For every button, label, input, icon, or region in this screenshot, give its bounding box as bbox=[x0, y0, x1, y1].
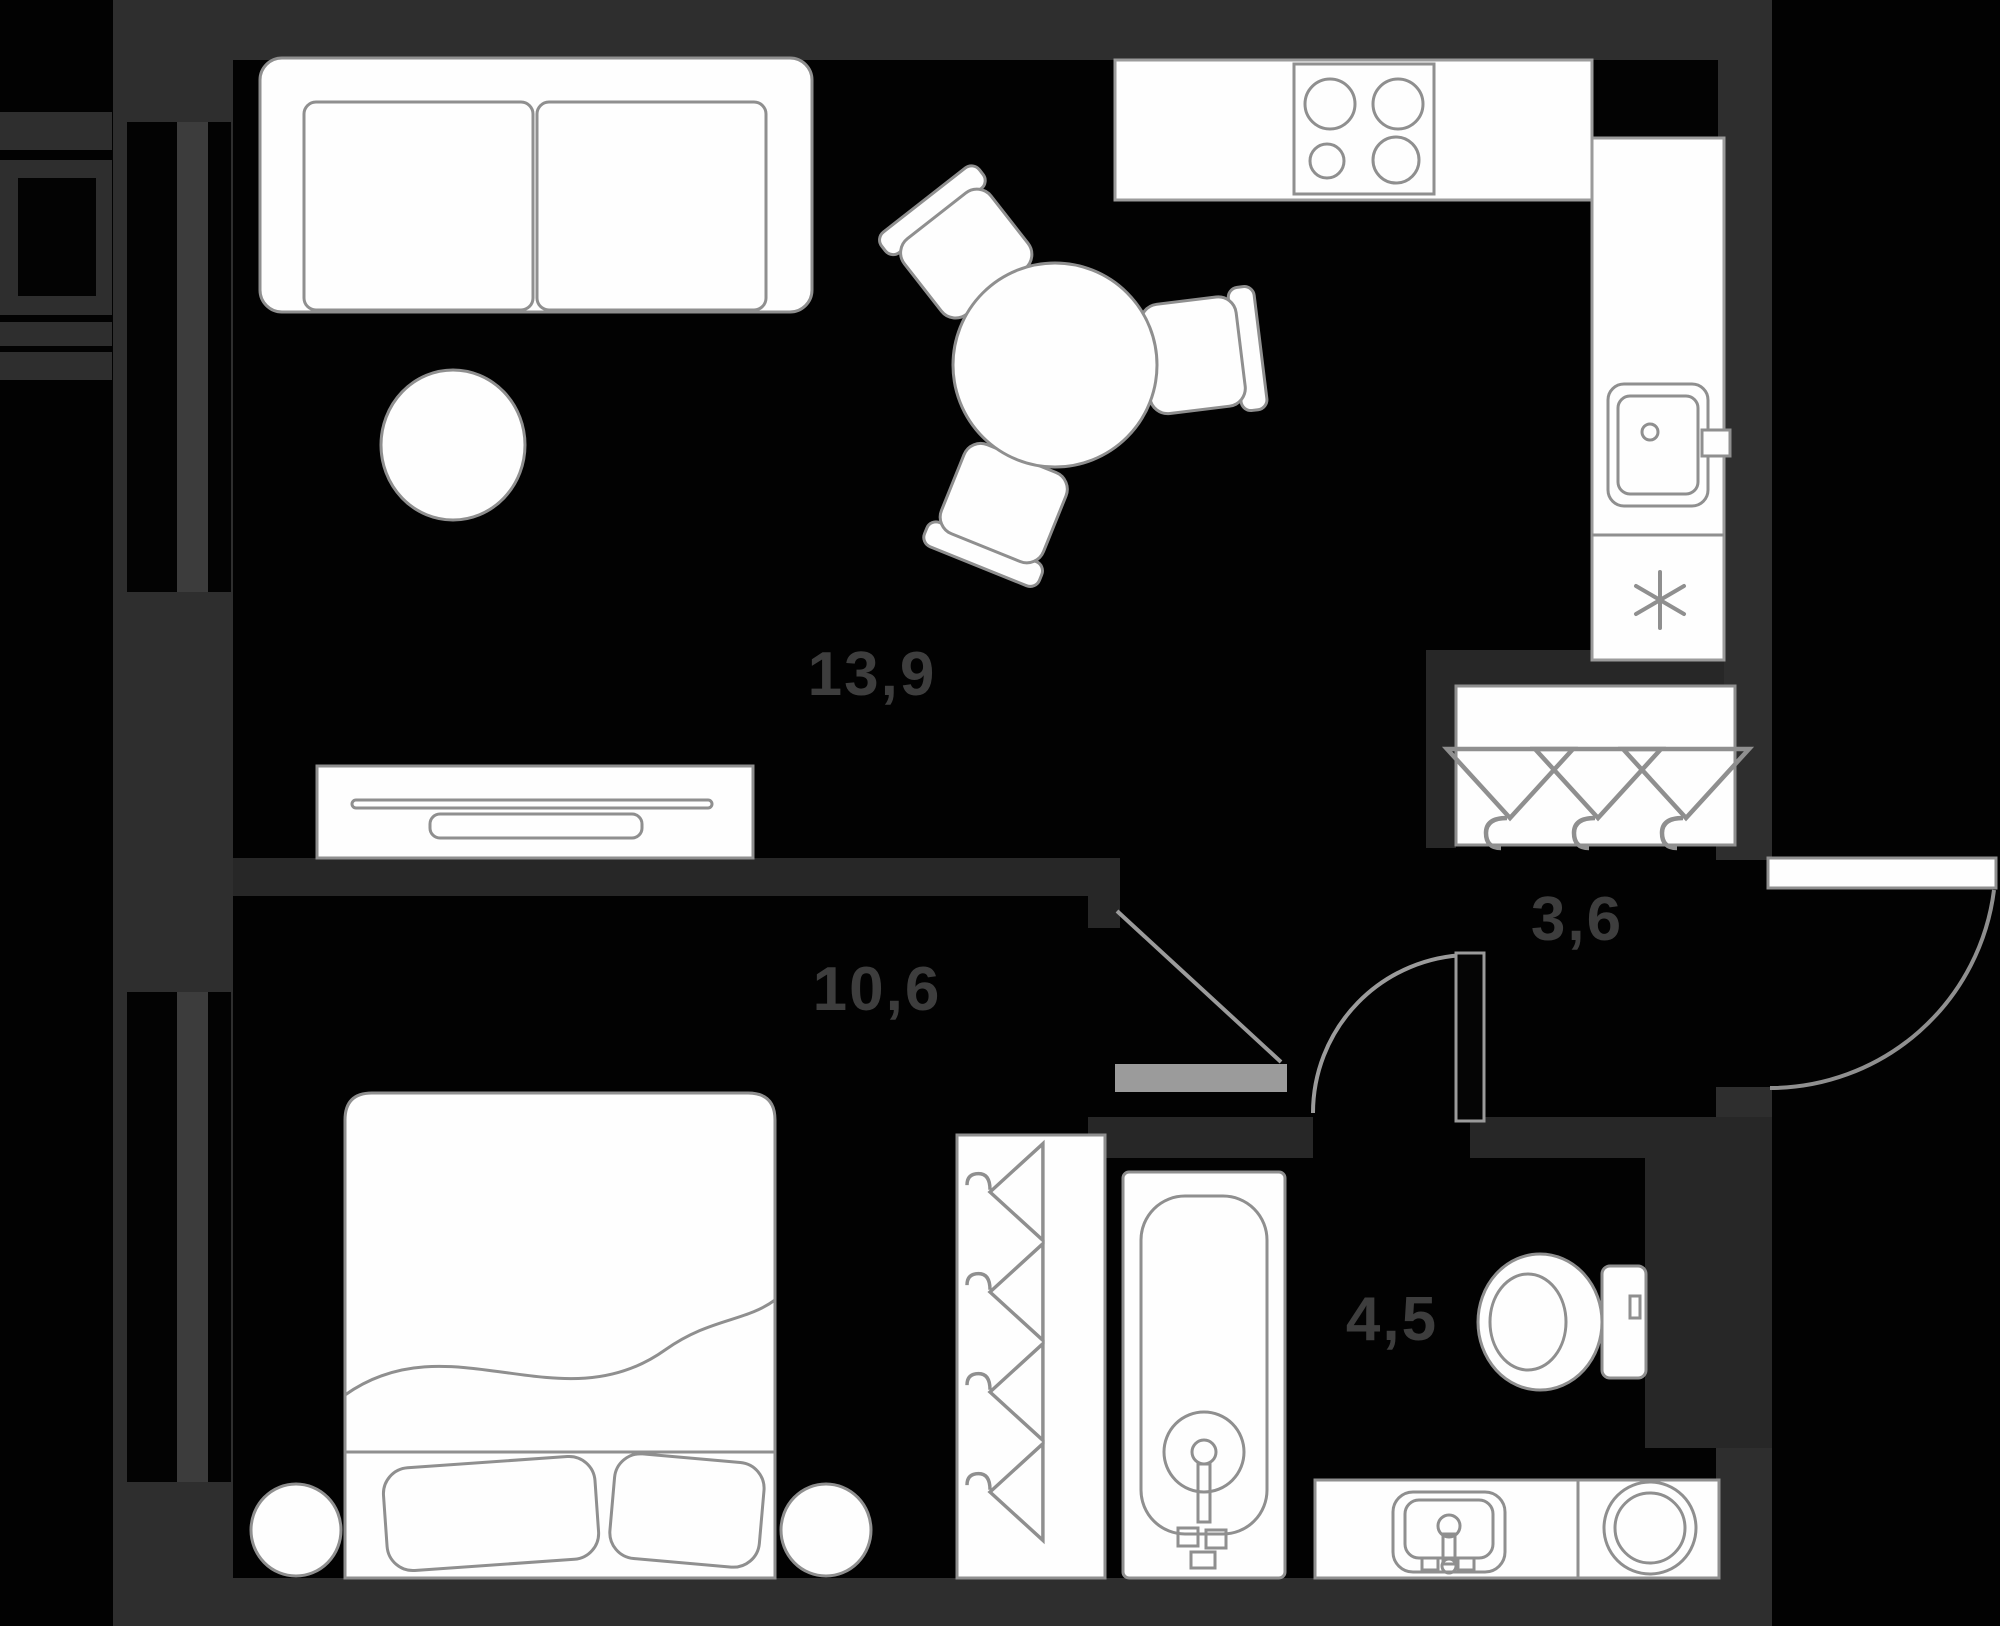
side-table bbox=[381, 370, 525, 520]
dining-set bbox=[876, 162, 1269, 590]
nightstand bbox=[251, 1484, 341, 1576]
floor-plan-canvas: 13,9 10,6 3,6 4,5 bbox=[0, 0, 2000, 1626]
wall-top bbox=[113, 0, 1772, 60]
nightstand bbox=[781, 1484, 871, 1576]
label-hallway-area: 3,6 bbox=[1531, 885, 1623, 954]
wall-closet-left bbox=[1426, 686, 1456, 848]
door-living-hall bbox=[1115, 911, 1287, 1092]
pillow bbox=[608, 1452, 767, 1570]
door-leaf bbox=[1456, 953, 1484, 1121]
wall-doorpost-stub bbox=[1088, 896, 1120, 928]
tv-soundbar bbox=[352, 800, 712, 808]
bedroom-furniture bbox=[251, 1093, 1105, 1578]
wall-living-bedroom bbox=[233, 858, 1120, 896]
toilet-tank bbox=[1602, 1266, 1646, 1378]
tv-screen bbox=[430, 814, 642, 838]
door-leaf bbox=[1768, 858, 1996, 888]
wardrobe bbox=[957, 1135, 1105, 1578]
hall-closet bbox=[1447, 686, 1749, 848]
kitchen-shaft bbox=[1598, 60, 1718, 138]
label-living-kitchen-area: 13,9 bbox=[808, 640, 937, 709]
wall-bathroom-top-right bbox=[1470, 1117, 1772, 1158]
pillow bbox=[382, 1455, 601, 1573]
toilet bbox=[1478, 1254, 1646, 1390]
wall-bottom bbox=[113, 1578, 1772, 1626]
window-living bbox=[127, 122, 231, 592]
label-bathroom-area: 4,5 bbox=[1346, 1285, 1438, 1354]
exterior-balcony-structure bbox=[0, 112, 112, 380]
door-entry bbox=[1768, 858, 1996, 1088]
window-bedroom bbox=[127, 992, 231, 1482]
sink-faucet bbox=[1702, 430, 1730, 456]
bathtub bbox=[1123, 1172, 1285, 1578]
washbasin-counter bbox=[1315, 1480, 1719, 1578]
door-bathroom bbox=[1313, 953, 1484, 1121]
bed bbox=[345, 1093, 775, 1578]
bathroom-fixtures bbox=[1123, 1172, 1719, 1578]
wall-toilet-niche bbox=[1645, 1158, 1772, 1448]
dining-table bbox=[953, 263, 1157, 467]
tv-console bbox=[317, 766, 753, 858]
wall-bathroom-top-left bbox=[1088, 1117, 1313, 1158]
door-leaf bbox=[1115, 1064, 1287, 1092]
stove bbox=[1294, 64, 1434, 194]
sofa bbox=[260, 58, 812, 312]
floor-plan-drawing: 13,9 10,6 3,6 4,5 bbox=[0, 0, 2000, 1626]
label-bedroom-area: 10,6 bbox=[813, 955, 942, 1024]
